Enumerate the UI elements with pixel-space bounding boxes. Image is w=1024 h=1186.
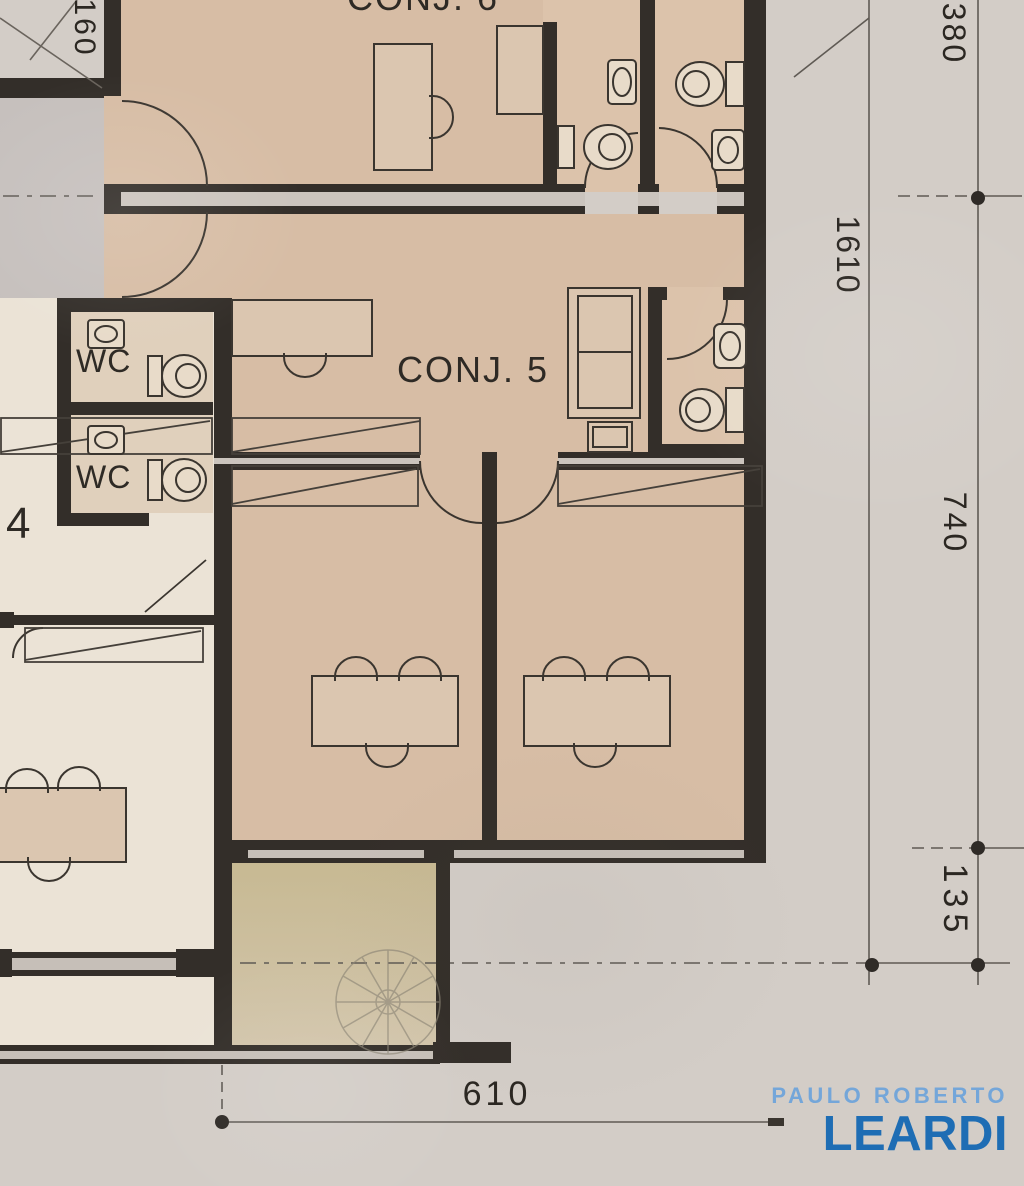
floor-plan-drawing [0,0,1024,1186]
dimension-740: 740 [932,488,972,558]
dimension-380: 380 [931,1,971,67]
dimension-135: 135 [933,855,973,947]
meeting-table [0,788,126,862]
logo-name-bottom: LEARDI [771,1110,1008,1159]
floor-plan-page: CONJ. 6 CONJ. 5 WC WC 4 160 380 1610 740… [0,0,1024,1186]
desk-office-b [524,676,670,746]
leardi-logo: PAULO ROBERTO LEARDI [771,1083,1008,1159]
room-label-wc-lower: WC [76,460,131,495]
room-label-wc-upper: WC [76,344,131,379]
desk-conj6 [374,44,432,170]
room-label-conj5: CONJ. 5 [378,350,568,390]
spiral-stair-icon [336,950,440,1054]
dimension-610: 610 [432,1076,562,1113]
dimension-1610: 1610 [825,209,865,301]
leader-line [794,18,869,77]
room-label-conj6: CONJ. 6 [338,0,508,18]
room-label-conj4: 4 [6,500,30,548]
dimension-160: 160 [61,0,101,58]
room-fills [0,0,744,1063]
logo-name-top: PAULO ROBERTO [771,1083,1008,1109]
cabinet-conj6 [497,26,543,114]
desk-conj5 [232,300,372,356]
desk-office-a [312,676,458,746]
sofa-icon [568,288,640,418]
